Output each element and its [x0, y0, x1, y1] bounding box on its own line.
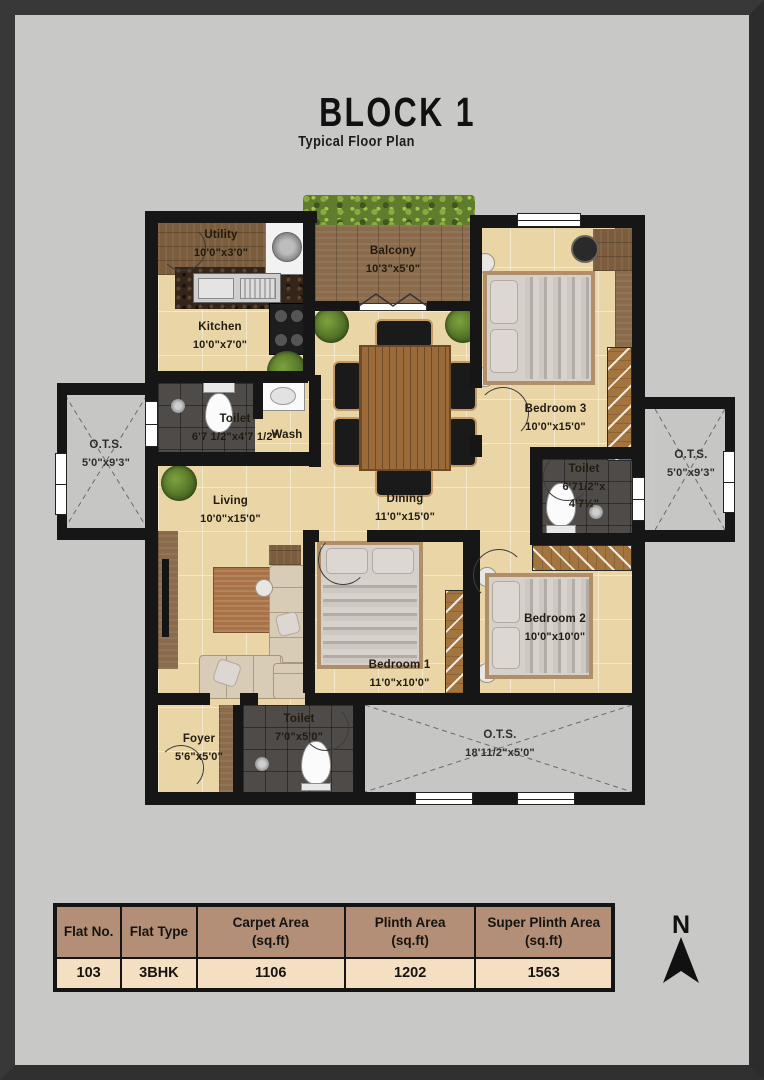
window	[632, 477, 645, 521]
dining-table	[359, 345, 451, 471]
room-dims: 10'0"x10'0"	[495, 629, 615, 646]
wall	[470, 435, 482, 457]
header-plinth-area: Plinth Area (sq.ft)	[345, 906, 476, 958]
area-table-data-row: 103 3BHK 1106 1202 1563	[56, 958, 612, 989]
room-name: Dining	[345, 491, 465, 509]
room-dims: 5'0"x9'3"	[651, 465, 731, 482]
bedroom3-label: Bedroom 3 10'0"x15'0"	[493, 401, 618, 436]
bedroom1-label: Bedroom 1 11'0"x10'0"	[337, 657, 462, 692]
window	[517, 792, 575, 805]
room-dims: 4'7½"	[539, 496, 629, 513]
room-dims: 5'6"x5'0"	[157, 749, 241, 766]
room-dims: 11'0"x10'0"	[337, 675, 462, 692]
wall	[57, 528, 147, 540]
balcony-label: Balcony 10'3"x5'0"	[333, 243, 453, 278]
header-super-plinth-area: Super Plinth Area (sq.ft)	[475, 906, 612, 958]
wall	[643, 397, 735, 409]
ots-left-label: O.T.S. 5'0"x9'3"	[63, 437, 149, 472]
room-name: Kitchen	[165, 319, 275, 337]
wall	[463, 530, 480, 699]
ots-right-label: O.T.S. 5'0"x9'3"	[651, 447, 731, 482]
room-name: Toilet	[247, 711, 351, 729]
room-dims: 10'0"x15'0"	[173, 511, 288, 528]
room-dims: 18'11/2"x5'0"	[405, 745, 595, 762]
wall	[315, 301, 359, 311]
area-table-header-row: Flat No. Flat Type Carpet Area (sq.ft) P…	[56, 906, 612, 958]
header-carpet-area: Carpet Area (sq.ft)	[197, 906, 345, 958]
foyer-label: Foyer 5'6"x5'0"	[157, 731, 241, 766]
room-name: Bedroom 1	[337, 657, 462, 675]
wall	[470, 228, 482, 388]
header-flat-type: Flat Type	[121, 906, 196, 958]
room-dims: 7'0"x5'0"	[247, 729, 351, 746]
wall	[240, 693, 258, 705]
wall	[643, 530, 735, 542]
door-swing-arc	[318, 535, 368, 585]
north-label: N	[660, 911, 702, 940]
window	[517, 213, 581, 227]
room-name: Bedroom 3	[493, 401, 618, 419]
room-dims: 6'71/2"x	[539, 479, 629, 496]
toilet-bottom-label: Toilet 7'0"x5'0"	[247, 711, 351, 746]
wall	[303, 530, 315, 693]
room-name: Utility	[161, 227, 281, 245]
living-label: Living 10'0"x15'0"	[173, 493, 288, 528]
wall	[427, 301, 470, 311]
wall	[145, 211, 158, 805]
room-dims: 10'0"x15'0"	[493, 419, 618, 436]
balcony-folding-door	[359, 291, 427, 307]
wall	[353, 705, 365, 793]
room-dims: 10'3"x5'0"	[333, 261, 453, 278]
room-dims: 10'0"x7'0"	[165, 337, 275, 354]
room-name: O.T.S.	[405, 727, 595, 745]
room-name: Bedroom 2	[495, 611, 615, 629]
page-subtitle: Typical Floor Plan	[0, 133, 739, 150]
wash-label: Wash	[261, 427, 313, 445]
room-dims: 5'0"x9'3"	[63, 455, 149, 472]
room-dims: 10'0"x3'0"	[161, 245, 281, 262]
tv-unit	[158, 531, 178, 669]
page-title: BLOCK 1	[15, 89, 764, 136]
wall	[303, 211, 315, 381]
cell-plinth-area: 1202	[345, 958, 476, 989]
utility-label: Utility 10'0"x3'0"	[161, 227, 281, 262]
toilet-bottom-shower	[255, 757, 269, 771]
area-table: Flat No. Flat Type Carpet Area (sq.ft) P…	[53, 903, 615, 992]
toilet-bed3-label: Toilet 6'71/2"x 4'7½"	[539, 461, 629, 513]
dining-plant-left	[313, 307, 349, 343]
subtitle-text: Typical Floor Plan	[299, 133, 416, 150]
cell-super-plinth-area: 1563	[475, 958, 612, 989]
ots-bottom-label: O.T.S. 18'11/2"x5'0"	[405, 727, 595, 762]
north-arrow-icon	[663, 937, 699, 983]
bedroom2-wardrobe	[532, 545, 632, 571]
floor-plan-page: BLOCK 1 Typical Floor Plan	[0, 0, 764, 1080]
bedroom2-label: Bedroom 2 10'0"x10'0"	[495, 611, 615, 646]
wall	[158, 371, 308, 383]
kitchen-sink	[193, 273, 281, 303]
wash-basin	[261, 381, 305, 411]
balcony-hedge	[303, 195, 475, 225]
bedroom3-bed	[483, 271, 595, 385]
living-corner-table	[269, 545, 301, 565]
room-name: O.T.S.	[63, 437, 149, 455]
room-name: Toilet	[539, 461, 629, 479]
wall	[530, 447, 644, 459]
bedroom3-chair	[571, 235, 599, 263]
wall	[367, 530, 477, 542]
block-title-text: BLOCK 1	[319, 89, 476, 136]
room-name: Foyer	[157, 731, 241, 749]
cell-flat-type: 3BHK	[121, 958, 196, 989]
wall	[305, 693, 645, 705]
kitchen-label: Kitchen 10'0"x7'0"	[165, 319, 275, 354]
room-dims: 11'0"x15'0"	[345, 509, 465, 526]
wall	[158, 693, 210, 705]
header-flat-no: Flat No.	[56, 906, 121, 958]
window	[415, 792, 473, 805]
wall	[57, 383, 147, 395]
wall	[530, 533, 644, 545]
dining-label: Dining 11'0"x15'0"	[345, 491, 465, 526]
wall	[145, 211, 317, 223]
living-side-table	[255, 579, 273, 597]
room-name: Living	[173, 493, 288, 511]
door-swing-arc	[473, 549, 525, 601]
room-name: Wash	[261, 427, 313, 445]
room-name: O.T.S.	[651, 447, 731, 465]
cell-carpet-area: 1106	[197, 958, 345, 989]
wall	[158, 452, 318, 466]
room-name: Balcony	[333, 243, 453, 261]
toilet-bottom-tank	[301, 783, 331, 791]
cell-flat-no: 103	[56, 958, 121, 989]
